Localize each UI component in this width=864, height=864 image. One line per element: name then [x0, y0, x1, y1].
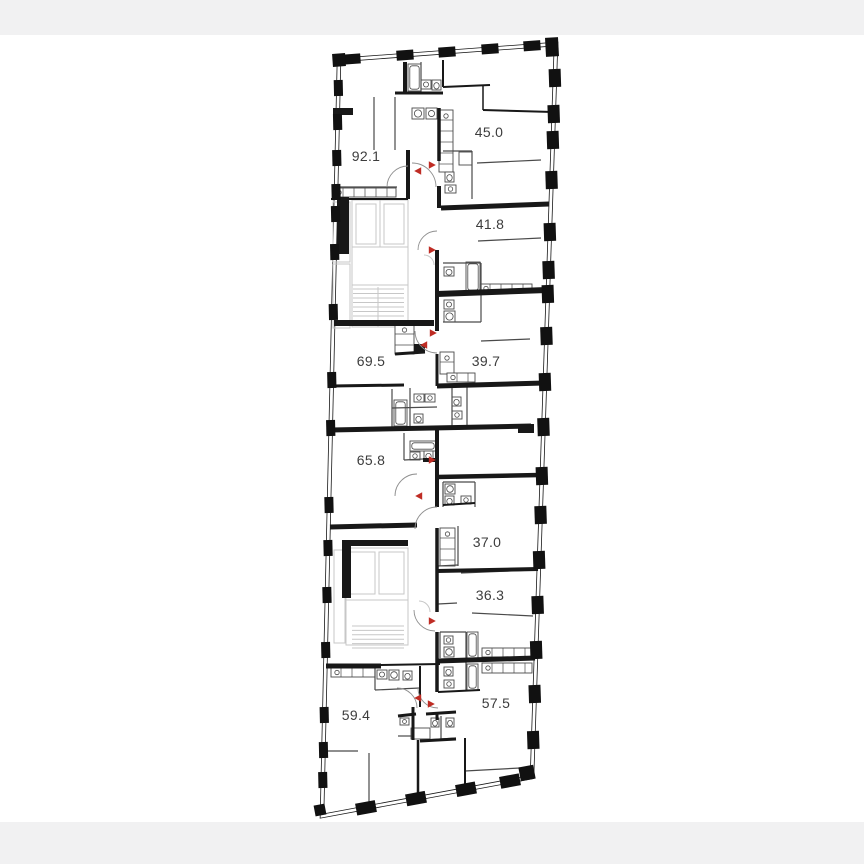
column: [542, 261, 555, 279]
column: [539, 373, 552, 391]
sink-icon: [444, 636, 453, 644]
floor-plan-svg: 92.145.041.869.539.765.837.036.359.457.5: [0, 0, 864, 864]
column: [531, 596, 544, 614]
kitchen-counter: [395, 324, 414, 354]
column: [523, 40, 541, 51]
column: [329, 304, 338, 320]
column: [323, 540, 332, 556]
kitchen-counter: [482, 663, 532, 673]
area-label: 41.8: [476, 216, 504, 232]
column: [319, 742, 328, 758]
area-label: 37.0: [473, 534, 501, 550]
sink-icon: [425, 394, 435, 402]
column: [327, 372, 336, 388]
column: [528, 685, 541, 703]
shear-wall: [333, 108, 353, 115]
column: [321, 642, 330, 658]
kitchen-counter: [331, 668, 375, 677]
kitchen-counter: [440, 352, 454, 374]
toilet-icon: [444, 667, 453, 676]
column: [547, 105, 560, 123]
toilet-icon: [444, 267, 454, 276]
column: [540, 327, 553, 345]
column: [549, 69, 562, 87]
column: [533, 551, 546, 569]
column: [326, 420, 335, 436]
column: [545, 37, 559, 57]
wall: [420, 739, 456, 741]
sink-icon: [426, 108, 437, 119]
area-label: 57.5: [482, 695, 510, 711]
column: [324, 497, 333, 513]
shower-icon: [459, 152, 472, 165]
column: [330, 244, 339, 260]
column: [396, 50, 414, 61]
sink-icon: [444, 680, 454, 688]
column: [527, 731, 540, 749]
column: [331, 184, 340, 200]
column: [438, 46, 456, 57]
area-label: 69.5: [357, 353, 385, 369]
wall: [437, 475, 540, 477]
toilet-icon: [403, 671, 412, 680]
column: [318, 772, 327, 788]
sink-icon: [444, 300, 454, 309]
column: [320, 707, 329, 723]
wall: [332, 385, 404, 386]
toilet-icon: [446, 718, 454, 727]
wall: [437, 569, 538, 571]
column: [481, 43, 499, 54]
column: [544, 223, 557, 241]
area-label: 92.1: [352, 148, 380, 164]
kitchen-counter: [447, 373, 475, 382]
area-label: 39.7: [472, 353, 500, 369]
shear-wall: [518, 424, 534, 433]
column: [322, 587, 331, 603]
column: [333, 114, 342, 130]
wall: [437, 383, 544, 386]
column: [530, 641, 543, 659]
letterbox-top: [0, 0, 864, 35]
column: [547, 131, 560, 149]
column: [542, 285, 555, 303]
column: [314, 804, 327, 817]
sink-icon: [421, 80, 431, 89]
column: [334, 80, 343, 96]
column: [537, 418, 550, 436]
wall: [426, 712, 456, 714]
area-label: 36.3: [476, 587, 504, 603]
toilet-icon: [445, 172, 454, 182]
toilet-icon: [414, 414, 423, 423]
column: [545, 171, 558, 189]
kitchen-counter: [439, 110, 453, 172]
sink-icon: [445, 185, 456, 193]
sink-icon: [400, 718, 409, 725]
letterbox-bottom: [0, 822, 864, 864]
wall: [381, 664, 440, 665]
area-label: 45.0: [475, 124, 503, 140]
kitchen-counter: [482, 648, 532, 657]
column: [332, 53, 346, 67]
area-label: 59.4: [342, 707, 370, 723]
wall: [437, 658, 535, 661]
column: [534, 506, 547, 524]
column: [518, 765, 535, 781]
area-label: 65.8: [357, 452, 385, 468]
kitchen-counter: [333, 188, 396, 197]
column: [536, 467, 549, 485]
sink-icon: [452, 411, 462, 419]
column: [331, 206, 340, 222]
shear-wall: [342, 540, 408, 546]
sink-icon: [377, 670, 387, 679]
column: [343, 53, 361, 64]
wall: [437, 290, 547, 294]
sink-icon: [414, 394, 424, 402]
wall: [330, 525, 417, 527]
column: [332, 150, 341, 166]
toilet-icon: [432, 80, 441, 90]
floor-plan-canvas: 92.145.041.869.539.765.837.036.359.457.5: [0, 0, 864, 864]
shear-wall: [342, 543, 351, 598]
toilet-icon: [452, 397, 461, 406]
